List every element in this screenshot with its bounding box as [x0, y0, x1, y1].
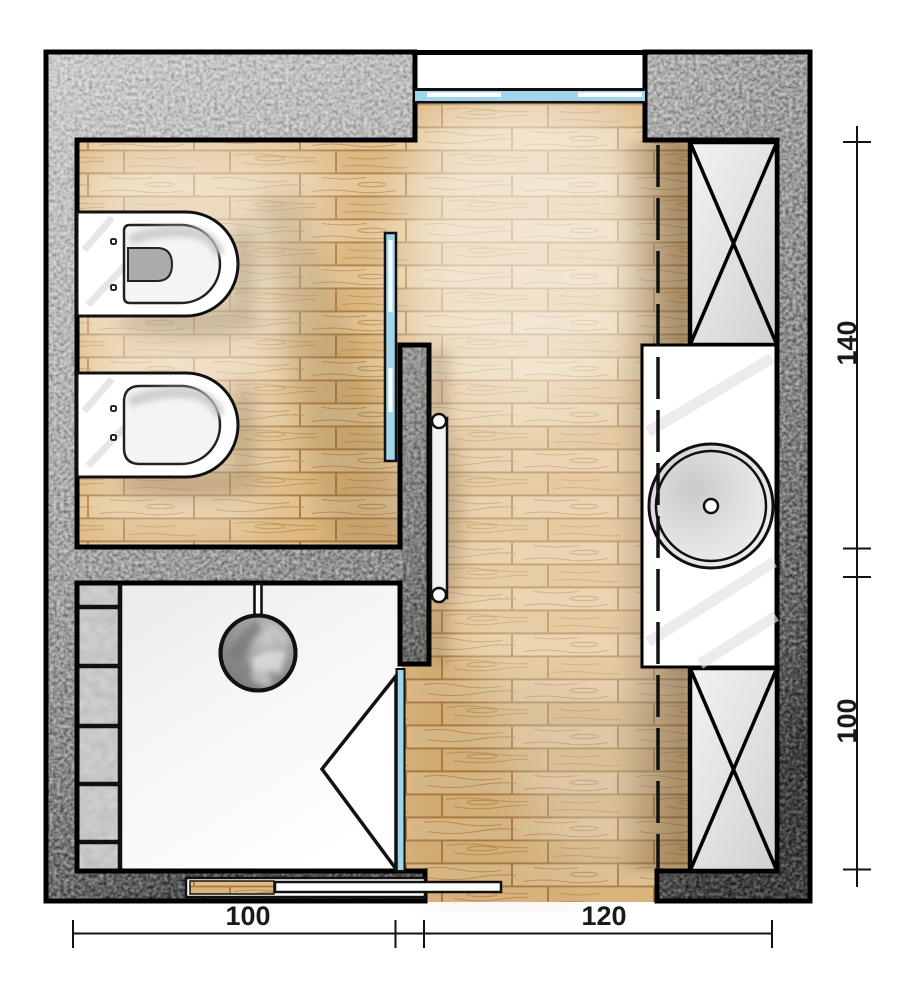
- svg-text:100: 100: [225, 901, 270, 931]
- svg-text:100: 100: [832, 698, 862, 743]
- svg-text:140: 140: [832, 320, 862, 365]
- svg-text:120: 120: [581, 901, 626, 931]
